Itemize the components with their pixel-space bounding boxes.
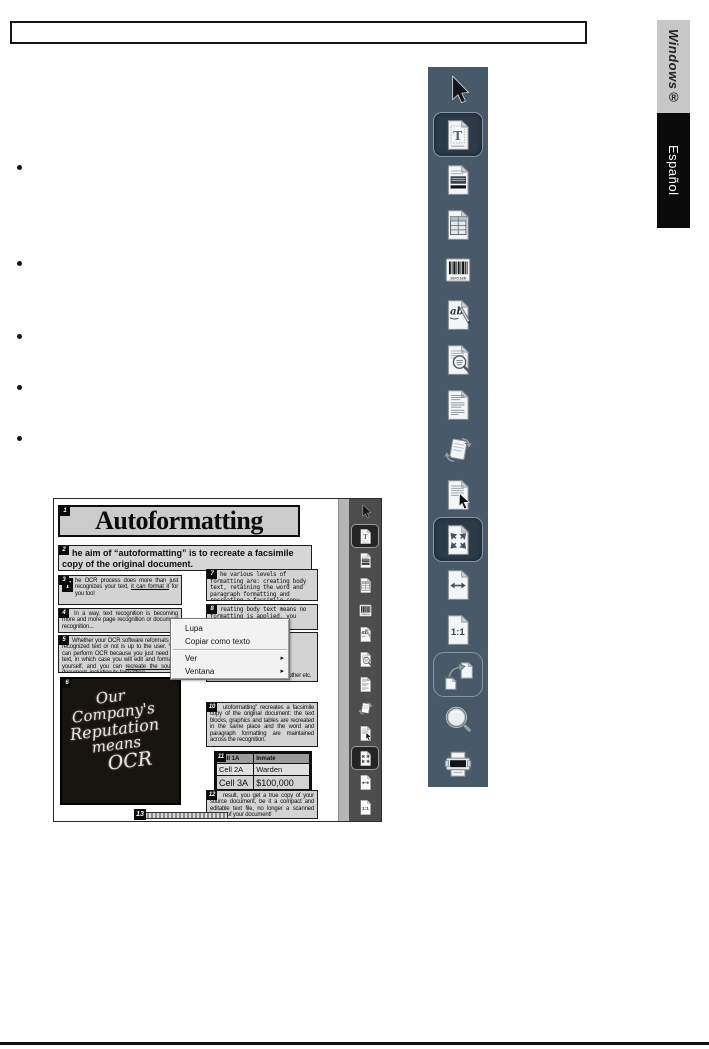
mini-toolbar-button-page-table[interactable] bbox=[349, 573, 381, 598]
page-handwriting-icon: ab bbox=[357, 626, 374, 643]
page-magnifier-icon bbox=[357, 651, 374, 668]
context-menu-item-ventana[interactable]: Ventana▸ bbox=[171, 665, 289, 678]
page-text-icon: T bbox=[357, 528, 374, 545]
block-marker: 12 bbox=[207, 791, 217, 800]
page-text-icon: T bbox=[441, 118, 475, 152]
table-cell: $100,000 bbox=[254, 776, 310, 790]
clipboard-sync-icon bbox=[357, 700, 374, 717]
toolbar-button-page-cursor[interactable] bbox=[428, 472, 488, 517]
tab-windows: Windows® bbox=[657, 20, 690, 113]
barcode-icon: 2845186 bbox=[357, 602, 374, 619]
block-marker: 10 bbox=[207, 703, 217, 712]
page-table-icon bbox=[441, 208, 475, 242]
svg-text:2845186: 2845186 bbox=[450, 275, 467, 280]
svg-text:2845186: 2845186 bbox=[361, 614, 370, 616]
page-paragraphs-icon bbox=[357, 676, 374, 693]
toolbar-button-page-actual-size[interactable]: 1:1 bbox=[428, 607, 488, 652]
block-marker: 13 bbox=[134, 809, 146, 820]
table-cell: Warden bbox=[254, 764, 310, 776]
mini-toolbar-button-page-fit-width[interactable] bbox=[349, 771, 381, 796]
block-marker: 8 bbox=[207, 605, 217, 614]
block-marker: 4 bbox=[59, 609, 69, 618]
doc-table: 11 Cell 1AInmateCell 2AWardenCell 3A$100… bbox=[214, 751, 312, 792]
submenu-arrow-icon: ▸ bbox=[280, 665, 284, 678]
clipboard-sync-icon bbox=[441, 433, 475, 467]
block-marker: 5 bbox=[59, 636, 69, 645]
svg-text:1:1: 1:1 bbox=[451, 626, 465, 637]
block-marker: 7 bbox=[207, 570, 217, 579]
mini-toolbar-button-page-cursor[interactable] bbox=[349, 721, 381, 746]
pages-export-icon bbox=[441, 658, 475, 692]
doc-block-image: 6 OurCompany'sReputationmeansOCR bbox=[60, 677, 181, 805]
table-row: Cell 1AInmate bbox=[217, 754, 310, 764]
page-stripes-icon bbox=[357, 552, 374, 569]
toolbar-button-page-fit-width[interactable] bbox=[428, 562, 488, 607]
bullet-point bbox=[17, 165, 22, 170]
context-menu: LupaCopiar como textoVer▸Ventana▸ bbox=[170, 618, 290, 680]
page-table-icon bbox=[357, 577, 374, 594]
toolbar-button-page-paragraphs[interactable] bbox=[428, 382, 488, 427]
page-footer-rule bbox=[0, 1042, 709, 1045]
tab-espanol: Español bbox=[657, 113, 690, 228]
svg-text:T: T bbox=[363, 533, 368, 540]
toolbar-button-page-stripes[interactable] bbox=[428, 157, 488, 202]
toolbar-button-clipboard-sync[interactable] bbox=[428, 427, 488, 472]
page-fit-width-icon bbox=[441, 568, 475, 602]
magnifier-icon bbox=[441, 703, 475, 737]
mini-toolbar-button-page-stripes[interactable] bbox=[349, 548, 381, 573]
toolbar-button-printer[interactable] bbox=[428, 742, 488, 787]
context-menu-item-copiar-como-texto[interactable]: Copiar como texto bbox=[171, 635, 289, 648]
mini-toolbar-button-page-magnifier[interactable] bbox=[349, 647, 381, 672]
bullet-point bbox=[17, 385, 22, 390]
pointer-cursor-icon bbox=[357, 503, 374, 520]
toolbar-button-pages-export[interactable] bbox=[428, 652, 488, 697]
svg-text:1:1: 1:1 bbox=[361, 806, 368, 812]
toolbar-button-page-table[interactable] bbox=[428, 202, 488, 247]
submenu-arrow-icon: ▸ bbox=[280, 652, 284, 665]
toolbar-button-page-magnifier[interactable] bbox=[428, 337, 488, 382]
block-marker: 6 bbox=[62, 679, 72, 688]
menu-item-label: Copiar como texto bbox=[185, 637, 250, 646]
page-handwriting-icon: ab bbox=[441, 298, 475, 332]
printer-icon bbox=[441, 748, 475, 782]
table-row: Cell 2AWarden bbox=[217, 764, 310, 776]
mini-toolbar-button-page-text[interactable]: T bbox=[349, 524, 381, 549]
page-stripes-icon bbox=[441, 163, 475, 197]
barcode-icon: 2845186 bbox=[441, 253, 475, 287]
page-fit-icon bbox=[357, 750, 374, 767]
page-cursor-icon bbox=[357, 725, 374, 742]
page-cursor-icon bbox=[441, 478, 475, 512]
context-menu-item-lupa[interactable]: Lupa bbox=[171, 622, 289, 635]
toolbar-button-page-text[interactable]: T bbox=[428, 112, 488, 157]
mini-toolbar-button-clipboard-sync[interactable] bbox=[349, 697, 381, 722]
context-menu-item-ver[interactable]: Ver▸ bbox=[171, 652, 289, 665]
doc-title: Autoformatting bbox=[95, 506, 263, 536]
tab-espanol-label: Español bbox=[666, 145, 681, 195]
menu-item-label: Lupa bbox=[185, 624, 203, 633]
menu-item-label: Ver bbox=[185, 654, 197, 663]
doc-block-5: 5 Whether your OCR software reformats th… bbox=[58, 635, 182, 673]
table-row: Cell 3A$100,000 bbox=[217, 776, 310, 790]
menu-item-label: Ventana bbox=[185, 667, 214, 676]
toolbar-button-magnifier[interactable] bbox=[428, 697, 488, 742]
pointer-cursor-icon bbox=[441, 73, 475, 107]
block-marker: 1 bbox=[60, 507, 70, 516]
empty-heading-box bbox=[10, 21, 587, 44]
screenshot-window: 1 Autoformatting 2 he aim of “autoformat… bbox=[53, 498, 382, 822]
document-page: 1 Autoformatting 2 he aim of “autoformat… bbox=[54, 499, 338, 821]
doc-block-tagline: 2 he aim of “autoformatting” is to recre… bbox=[58, 545, 312, 571]
page-actual-size-icon: 1:1 bbox=[357, 799, 374, 816]
toolbar-button-page-handwriting[interactable]: ab bbox=[428, 292, 488, 337]
table-cell: Cell 3A bbox=[217, 776, 254, 790]
page-actual-size-icon: 1:1 bbox=[441, 613, 475, 647]
toolbar-button-pointer-cursor[interactable] bbox=[428, 67, 488, 112]
doc-block-footer bbox=[142, 812, 228, 819]
page-magnifier-icon bbox=[441, 343, 475, 377]
block-marker: 3 bbox=[59, 576, 69, 585]
doc-block-3: 3 The OCR process does more than just re… bbox=[58, 575, 182, 605]
mini-toolbar-button-barcode[interactable]: 2845186 bbox=[349, 598, 381, 623]
bullet-point bbox=[17, 261, 22, 266]
doc-block-4: 4 In a way, text recognition is becoming… bbox=[58, 608, 182, 633]
table-cell: Cell 2A bbox=[217, 764, 254, 776]
svg-text:T: T bbox=[453, 127, 462, 142]
handwritten-slogan: OurCompany'sReputationmeansOCR bbox=[60, 682, 181, 780]
block-marker: 11 bbox=[216, 753, 226, 762]
mini-toolbar-button-page-handwriting[interactable]: ab bbox=[349, 622, 381, 647]
block-marker: 2 bbox=[59, 546, 69, 555]
manual-page: { "colors":{"toolbar_bg":"#48596a","tool… bbox=[0, 0, 709, 1049]
mini-toolbar-button-page-fit[interactable] bbox=[349, 746, 381, 771]
doc-block-title: 1 Autoformatting bbox=[58, 505, 300, 537]
page-fit-width-icon bbox=[357, 774, 374, 791]
page-paragraphs-icon bbox=[441, 388, 475, 422]
doc-block-7: 7 he various levels of formatting are: c… bbox=[206, 569, 318, 601]
toolbar-button-page-fit[interactable] bbox=[428, 517, 488, 562]
bullet-point bbox=[17, 436, 22, 441]
mini-toolbar: T2845186ab1:1 bbox=[349, 499, 381, 821]
doc-block-10: 10 utoformatting” recreates a facsimile … bbox=[206, 702, 318, 747]
toolbar-button-barcode[interactable]: 2845186 bbox=[428, 247, 488, 292]
menu-separator bbox=[173, 649, 287, 651]
main-toolbar: T2845186ab1:1 bbox=[428, 67, 488, 787]
mini-toolbar-button-pointer-cursor[interactable] bbox=[349, 499, 381, 524]
tab-windows-label: Windows® bbox=[666, 29, 681, 105]
mini-toolbar-button-page-paragraphs[interactable] bbox=[349, 672, 381, 697]
bullet-point bbox=[17, 334, 22, 339]
table-cell: Inmate bbox=[254, 754, 310, 764]
page-fit-icon bbox=[441, 523, 475, 557]
mini-toolbar-button-page-actual-size[interactable]: 1:1 bbox=[349, 795, 381, 820]
